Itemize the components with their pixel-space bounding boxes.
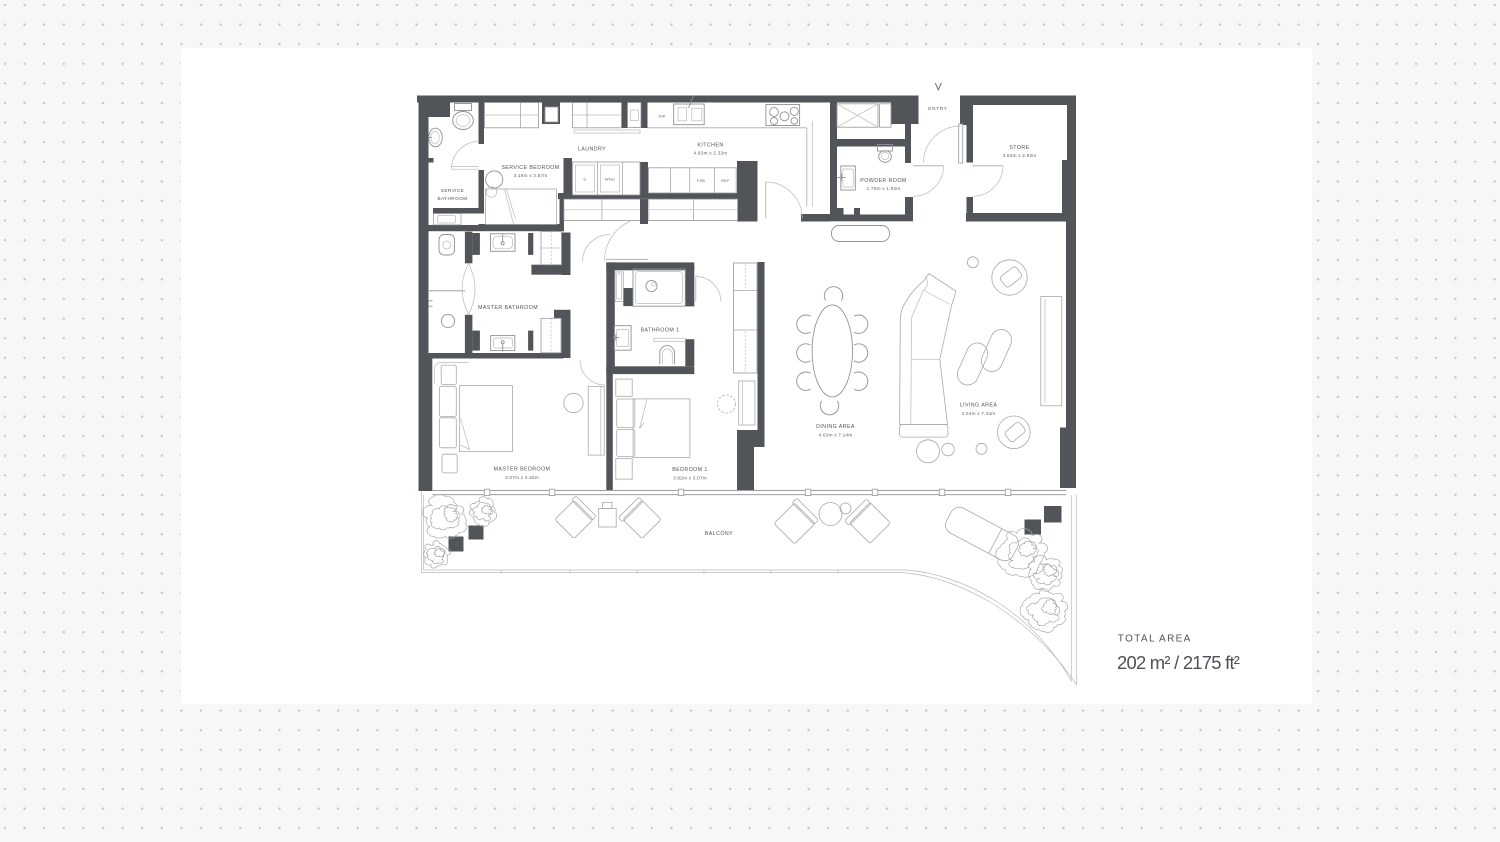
svg-text:3.82m x 3.07m: 3.82m x 3.07m [673, 475, 707, 480]
svg-text:3.18m x 3.57m: 3.18m x 3.57m [514, 173, 548, 178]
svg-text:MASTER BATHROOM: MASTER BATHROOM [478, 305, 538, 311]
svg-text:STORE: STORE [1009, 145, 1029, 151]
svg-text:ENTRY: ENTRY [928, 106, 948, 111]
svg-text:REF: REF [721, 178, 730, 183]
svg-text:SERVICE BEDROOM: SERVICE BEDROOM [501, 165, 559, 171]
svg-text:KITCHEN: KITCHEN [697, 143, 723, 149]
svg-text:LAUNDRY: LAUNDRY [578, 147, 606, 153]
svg-text:4.07m x 3.46m: 4.07m x 3.46m [505, 475, 539, 480]
svg-text:BALCONY: BALCONY [705, 531, 733, 537]
svg-text:4.04m x 7.34m: 4.04m x 7.34m [962, 411, 996, 416]
svg-text:WHU: WHU [605, 177, 615, 182]
svg-text:4.83m x 2.32m: 4.83m x 2.32m [694, 151, 728, 156]
svg-text:MASTER BEDROOM: MASTER BEDROOM [494, 466, 551, 472]
svg-text:DINING AREA: DINING AREA [816, 424, 855, 430]
svg-text:LIVING AREA: LIVING AREA [960, 402, 998, 408]
svg-text:FZB: FZB [697, 178, 705, 183]
svg-text:202 m² / 2175 ft²: 202 m² / 2175 ft² [1117, 652, 1240, 673]
svg-text:BEDROOM 1: BEDROOM 1 [672, 467, 708, 473]
svg-text:BATHROOM: BATHROOM [437, 196, 467, 201]
svg-text:SERVICE: SERVICE [441, 188, 464, 193]
svg-text:POWDER ROOM: POWDER ROOM [860, 178, 906, 184]
svg-text:3.53m x 2.92m: 3.53m x 2.92m [1003, 153, 1037, 158]
svg-text:4.03m x 7.14m: 4.03m x 7.14m [819, 433, 853, 438]
svg-text:DW: DW [659, 113, 666, 118]
svg-text:TOTAL AREA: TOTAL AREA [1118, 634, 1192, 645]
svg-text:BATHROOM 1: BATHROOM 1 [641, 328, 680, 334]
svg-text:1.79m x 1.92m: 1.79m x 1.92m [867, 186, 901, 191]
svg-text:U: U [583, 177, 586, 182]
